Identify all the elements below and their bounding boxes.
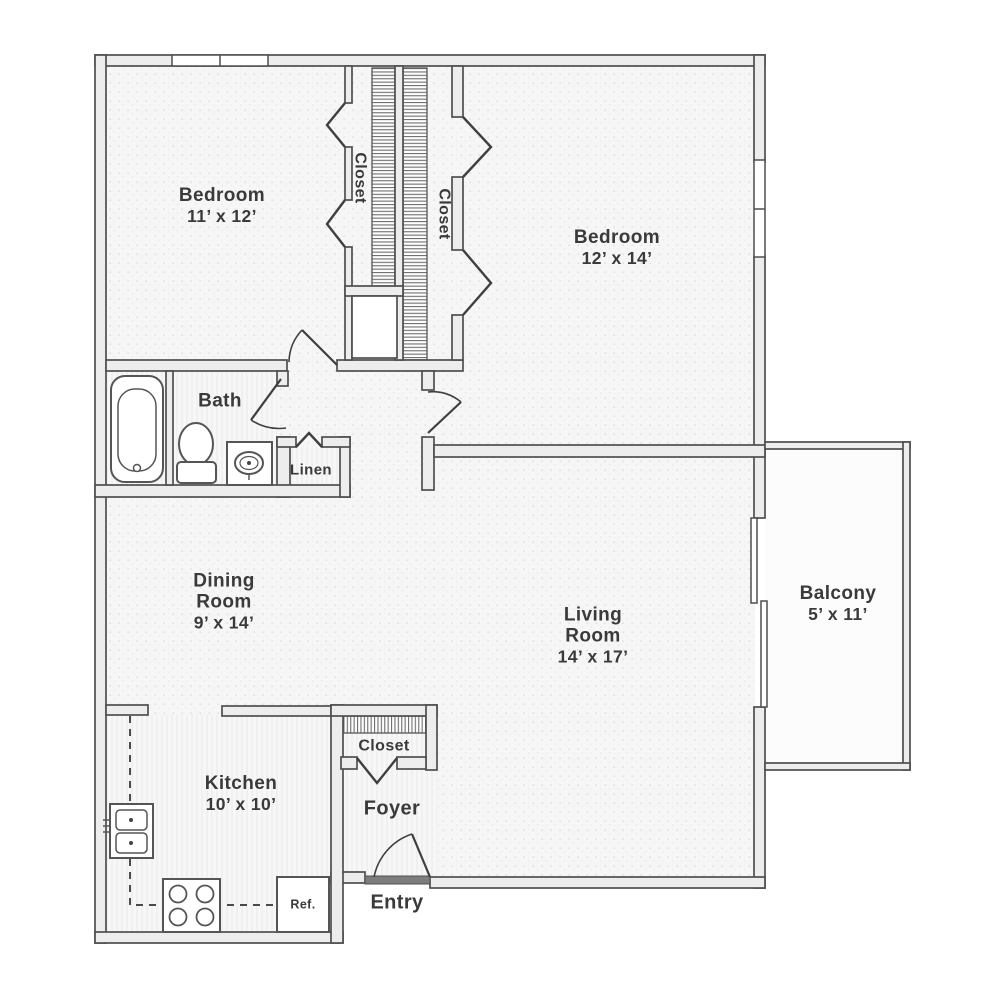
stove-icon [163,879,220,932]
utility-box [352,296,397,358]
entry-label: Entry [370,893,423,914]
floor-plan: Bedroom 11’ x 12’ Bedroom 12’ x 14’ Clos… [0,0,1000,1000]
bedroom2-label: Bedroom 12’ x 14’ [574,227,660,269]
kitchen-label: Kitchen 10’ x 10’ [205,773,277,815]
linen-label: Linen [290,460,332,481]
foyer-label: Foyer [364,799,420,820]
refrigerator-label: Ref. [290,895,315,916]
kitchen-sink-icon [103,804,153,858]
living-room-label: Living Room 14’ x 17’ [558,605,629,668]
closet1-label: Closet [350,152,371,203]
bedroom1-label: Bedroom 11’ x 12’ [179,185,265,227]
bathtub-icon [111,376,163,482]
bath-label: Bath [198,391,242,412]
closet2-label: Closet [434,188,455,239]
entry-threshold [365,876,430,884]
toilet-icon [177,423,216,483]
bathroom-sink-icon [227,442,272,485]
foyer-closet-label: Closet [358,736,409,757]
floor-plan-svg [0,0,1000,1000]
dining-room-label: Dining Room 9’ x 14’ [193,571,255,634]
balcony-label: Balcony 5’ x 11’ [800,583,877,625]
